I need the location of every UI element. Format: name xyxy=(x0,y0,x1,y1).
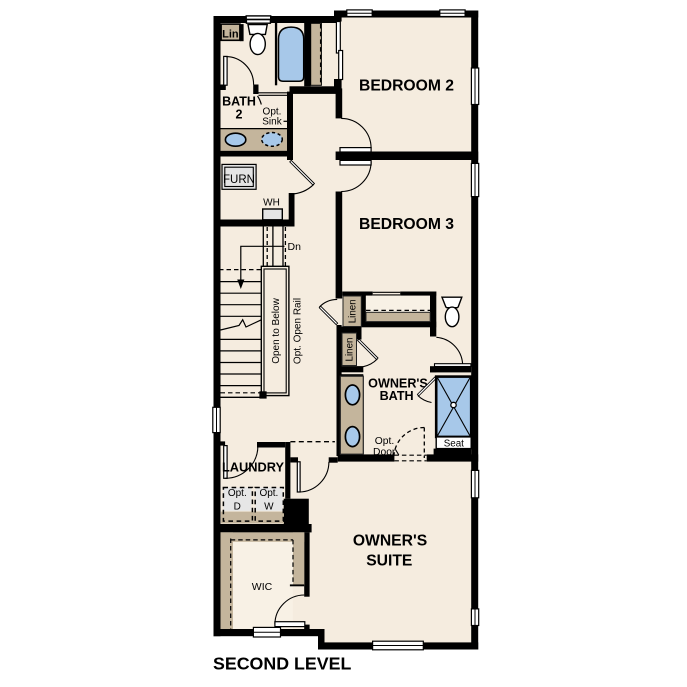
svg-text:Linen: Linen xyxy=(345,338,356,362)
svg-text:FURN: FURN xyxy=(223,174,255,186)
svg-text:WIC: WIC xyxy=(252,581,273,593)
svg-text:Opt.: Opt. xyxy=(375,436,394,447)
svg-text:Dn: Dn xyxy=(288,241,302,253)
svg-text:Opt.: Opt. xyxy=(228,488,247,499)
svg-text:BEDROOM 3: BEDROOM 3 xyxy=(359,216,454,233)
svg-text:D: D xyxy=(234,501,241,512)
svg-text:BEDROOM 2: BEDROOM 2 xyxy=(359,77,454,94)
svg-text:BATH: BATH xyxy=(222,95,256,109)
svg-text:Lin: Lin xyxy=(222,28,239,40)
svg-text:Door: Door xyxy=(373,447,396,458)
svg-text:Opt. Open Rail: Opt. Open Rail xyxy=(292,298,303,364)
svg-text:Linen: Linen xyxy=(348,299,359,323)
svg-text:Sink: Sink xyxy=(262,117,282,128)
svg-text:LAUNDRY: LAUNDRY xyxy=(222,460,285,475)
svg-text:BATH: BATH xyxy=(380,389,414,403)
svg-text:OWNER'S: OWNER'S xyxy=(353,533,427,550)
svg-text:WH: WH xyxy=(263,198,280,209)
svg-text:2: 2 xyxy=(236,108,243,122)
svg-text:SUITE: SUITE xyxy=(366,552,412,569)
svg-text:SECOND LEVEL: SECOND LEVEL xyxy=(213,654,351,674)
svg-text:Opt.: Opt. xyxy=(259,488,278,499)
svg-text:Open to Below: Open to Below xyxy=(271,297,282,363)
svg-text:W: W xyxy=(264,501,274,512)
svg-text:Seat: Seat xyxy=(444,438,464,449)
